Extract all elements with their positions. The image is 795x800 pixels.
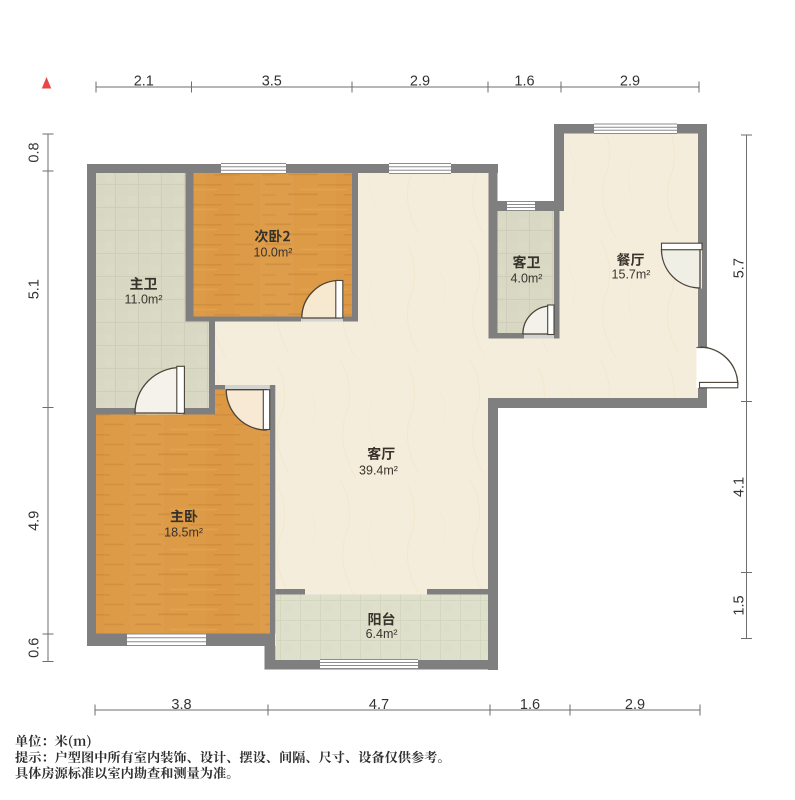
svg-text:2.9: 2.9: [620, 73, 640, 89]
svg-text:4.9: 4.9: [27, 511, 43, 531]
svg-text:1.5: 1.5: [732, 595, 748, 615]
svg-text:1.6: 1.6: [514, 73, 534, 89]
svg-text:5.1: 5.1: [27, 279, 43, 299]
svg-text:1.6: 1.6: [520, 697, 540, 713]
svg-text:11.0m²: 11.0m²: [125, 293, 163, 307]
svg-text:0.8: 0.8: [27, 142, 43, 162]
svg-text:39.4m²: 39.4m²: [359, 464, 398, 478]
svg-text:3.5: 3.5: [262, 73, 282, 89]
svg-text:0.6: 0.6: [27, 638, 43, 658]
svg-text:2.1: 2.1: [134, 73, 154, 89]
svg-text:6.4m²: 6.4m²: [366, 627, 398, 641]
svg-text:18.5m²: 18.5m²: [164, 526, 203, 540]
svg-text:2.9: 2.9: [410, 73, 430, 89]
svg-text:5.7: 5.7: [732, 258, 748, 278]
svg-text:2.9: 2.9: [625, 697, 645, 713]
svg-text:15.7m²: 15.7m²: [612, 268, 651, 282]
svg-text:3.8: 3.8: [171, 697, 191, 713]
svg-text:10.0m²: 10.0m²: [254, 246, 293, 260]
svg-text:4.1: 4.1: [732, 477, 748, 497]
svg-text:4.0m²: 4.0m²: [511, 272, 543, 286]
svg-text:4.7: 4.7: [369, 697, 389, 713]
